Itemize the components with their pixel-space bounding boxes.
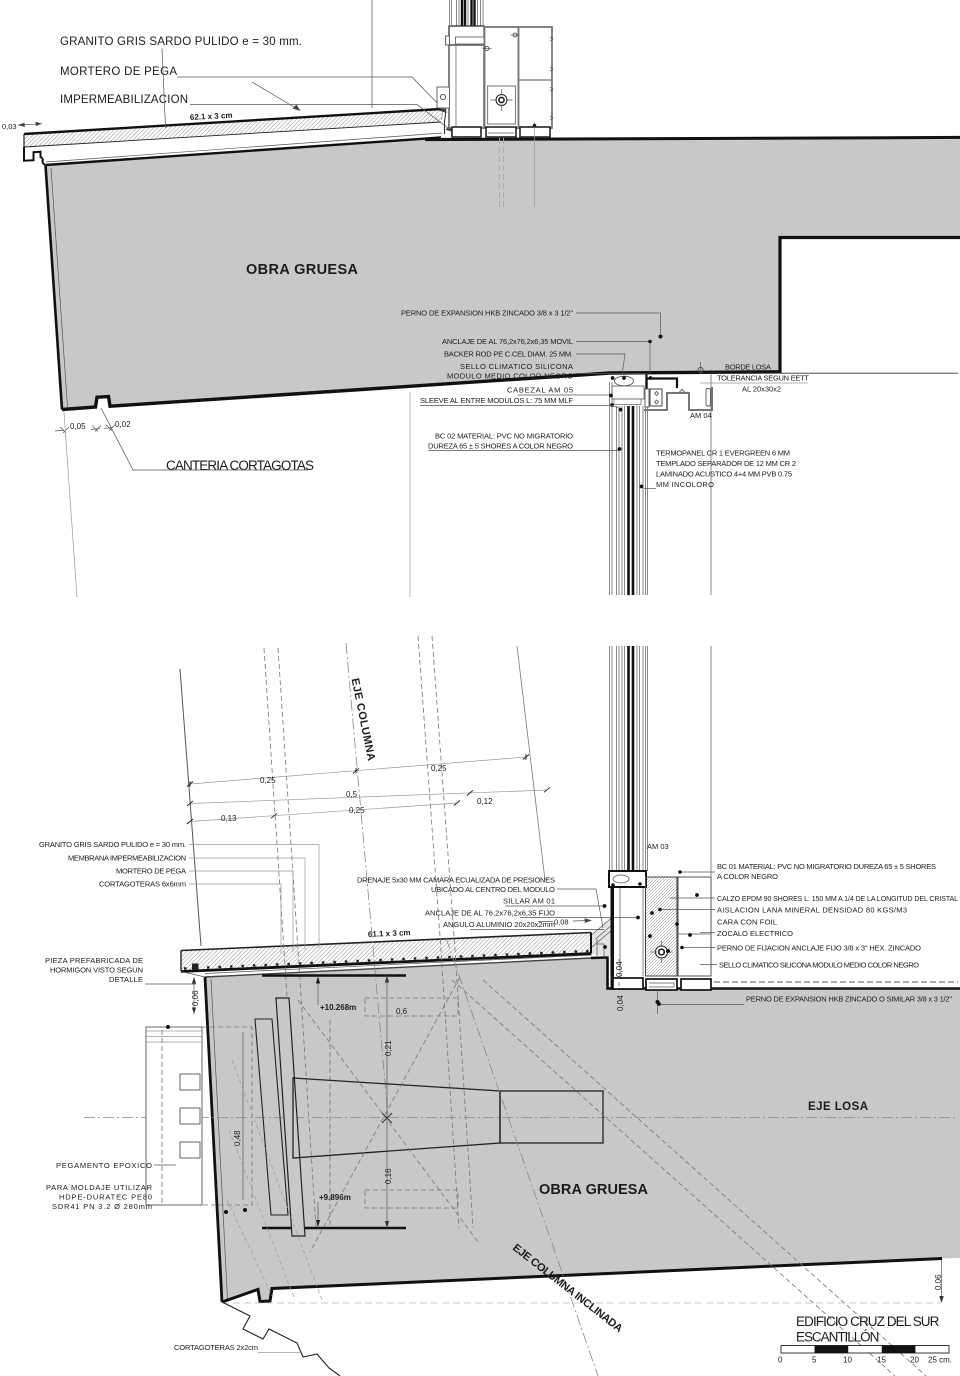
- svg-text:TOLERANCIA SEGUN EETT: TOLERANCIA SEGUN EETT: [717, 374, 809, 383]
- svg-text:ZOCALO ELECTRICO: ZOCALO ELECTRICO: [717, 929, 793, 938]
- svg-text:BORDE LOSA: BORDE LOSA: [725, 363, 771, 372]
- svg-text:LAMINADO ACUSTICO 4+4 MM PVB 0: LAMINADO ACUSTICO 4+4 MM PVB 0.75: [656, 470, 792, 479]
- svg-text:AM 04: AM 04: [690, 411, 712, 420]
- svg-text:ESCANTILLÓN: ESCANTILLÓN: [796, 1330, 880, 1345]
- svg-text:0,6: 0,6: [396, 1007, 408, 1016]
- svg-text:0,25: 0,25: [349, 806, 365, 815]
- svg-text:PIEZA PREFABRICADA DE: PIEZA PREFABRICADA DE: [45, 956, 143, 965]
- svg-text:25 cm.: 25 cm.: [928, 1356, 952, 1365]
- svg-text:A COLOR NEGRO: A COLOR NEGRO: [717, 872, 778, 881]
- svg-text:SELLO CLIMATICO SILICONA MODUL: SELLO CLIMATICO SILICONA MODULO MEDIO CO…: [719, 961, 919, 970]
- svg-text:+10.268m: +10.268m: [320, 1003, 356, 1012]
- svg-text:MORTERO DE PEGA: MORTERO DE PEGA: [116, 867, 186, 876]
- svg-text:0,05: 0,05: [70, 422, 86, 431]
- svg-text:CANTERIA CORTAGOTAS: CANTERIA CORTAGOTAS: [166, 458, 314, 473]
- svg-text:CORTAGOTERAS 6x6mm: CORTAGOTERAS 6x6mm: [99, 880, 186, 889]
- svg-text:ANCLAJE DE AL 76,2x76,2x6,35 M: ANCLAJE DE AL 76,2x76,2x6,35 MOVIL: [442, 337, 573, 346]
- svg-text:SILLAR AM 01: SILLAR AM 01: [503, 897, 555, 906]
- svg-text:0,08: 0,08: [554, 918, 569, 927]
- svg-text:HORMIGON VISTO SEGUN: HORMIGON VISTO SEGUN: [50, 966, 143, 975]
- svg-text:DETALLE: DETALLE: [109, 975, 143, 984]
- svg-text:DUREZA 65 ± 5 SHORES A COLOR N: DUREZA 65 ± 5 SHORES A COLOR NEGRO: [428, 442, 573, 451]
- svg-text:AISLACION LANA MINERAL DENSI: AISLACION LANA MINERAL DENSIDAD 80 KGS/M…: [717, 906, 907, 915]
- svg-text:CARA CON FOIL: CARA CON FOIL: [717, 918, 777, 927]
- svg-text:TERMOPANEL CR 1 EVERGREEN 6 MM: TERMOPANEL CR 1 EVERGREEN 6 MM: [656, 449, 790, 458]
- svg-text:CABEZAL AM 05: CABEZAL AM 05: [507, 386, 573, 395]
- svg-text:0,12: 0,12: [477, 797, 493, 806]
- svg-text:UBICADO AL CENTRO DEL MODULO: UBICADO AL CENTRO DEL MODULO: [431, 885, 555, 894]
- svg-text:0,25: 0,25: [260, 776, 276, 785]
- svg-text:SDR41 PN 3.2 Ø 280mm: SDR41 PN 3.2 Ø 280mm: [52, 1202, 152, 1211]
- svg-text:0,04: 0,04: [615, 961, 624, 977]
- svg-text:0,5: 0,5: [346, 790, 358, 799]
- svg-text:SLEEVE AL ENTRE MODULOS L: 75: SLEEVE AL ENTRE MODULOS L: 75 MM MLF: [420, 396, 573, 405]
- svg-text:0,21: 0,21: [384, 1040, 393, 1056]
- svg-text:PEGAMENTO EPOXICO: PEGAMENTO EPOXICO: [56, 1161, 152, 1170]
- svg-text:CALZO EPDM 90 SHORES L: 150 MM: CALZO EPDM 90 SHORES L: 150 MM A 1/4 DE …: [717, 896, 958, 903]
- svg-text:AM 03: AM 03: [647, 842, 669, 851]
- svg-text:OBRA GRUESA: OBRA GRUESA: [246, 262, 359, 278]
- svg-text:TEMPLADO SEPARADOR DE 12 MM C: TEMPLADO SEPARADOR DE 12 MM CR 2: [656, 459, 796, 468]
- svg-text:5: 5: [812, 1356, 817, 1365]
- svg-text:+9.896m: +9.896m: [319, 1193, 351, 1202]
- svg-text:EDIFICIO CRUZ DEL SUR: EDIFICIO CRUZ DEL SUR: [796, 1314, 940, 1329]
- svg-text:PERNO DE EXPANSION HKB ZINCADO: PERNO DE EXPANSION HKB ZINCADO 3/8 x 3 1…: [401, 309, 573, 318]
- svg-text:CORTAGOTERAS 2x2cm: CORTAGOTERAS 2x2cm: [174, 1343, 258, 1352]
- svg-text:DRENAJE 5x30 MM CAMARA ECUALIZ: DRENAJE 5x30 MM CAMARA ECUALIZADA DE PRE…: [357, 876, 555, 885]
- svg-text:GRANITO GRIS SARDO PULIDO e =: GRANITO GRIS SARDO PULIDO e = 30 mm.: [60, 36, 302, 48]
- svg-text:0,02: 0,02: [115, 420, 131, 429]
- svg-text:10: 10: [843, 1356, 852, 1365]
- svg-text:SELLO CLIMATICO SILICONA: SELLO CLIMATICO SILICONA: [460, 362, 573, 371]
- svg-text:MODULO MEDIO COLOR NEGRO: MODULO MEDIO COLOR NEGRO: [447, 372, 573, 381]
- svg-text:BACKER ROD PE C.CEL DIAM. 25 M: BACKER ROD PE C.CEL DIAM. 25 MM.: [444, 350, 573, 359]
- svg-text:0,25: 0,25: [431, 764, 447, 773]
- svg-text:0,13: 0,13: [221, 814, 237, 823]
- svg-text:15: 15: [877, 1356, 886, 1365]
- svg-text:PERNO DE FIJACION ANCLAJE FIJO: PERNO DE FIJACION ANCLAJE FIJO 3/8 x 3" …: [717, 944, 921, 953]
- svg-text:EJE LOSA: EJE LOSA: [808, 1101, 868, 1113]
- svg-text:IMPERMEABILIZACION: IMPERMEABILIZACION: [60, 94, 188, 106]
- svg-text:0,04: 0,04: [616, 995, 625, 1011]
- svg-text:MEMBRANA IMPERMEABILIZACION: MEMBRANA IMPERMEABILIZACION: [68, 854, 186, 863]
- svg-text:HDPE-DURATEC PE80: HDPE-DURATEC PE80: [59, 1193, 152, 1202]
- svg-text:0,16: 0,16: [384, 1168, 393, 1184]
- svg-text:0,06: 0,06: [191, 990, 200, 1006]
- svg-text:0: 0: [778, 1356, 783, 1365]
- svg-text:ANCLAJE DE AL 76,2x76,2x6,35 F: ANCLAJE DE AL 76,2x76,2x6,35 FIJO: [425, 909, 555, 918]
- svg-text:20: 20: [910, 1356, 919, 1365]
- svg-text:MM INCOLORO: MM INCOLORO: [656, 480, 714, 489]
- svg-text:PARA MOLDAJE UTILIZAR: PARA MOLDAJE UTILIZAR: [46, 1183, 153, 1192]
- svg-text:OBRA GRUESA: OBRA GRUESA: [539, 1182, 649, 1198]
- svg-text:MORTERO DE PEGA: MORTERO DE PEGA: [60, 66, 177, 78]
- svg-text:PERNO DE EXPANSION HKB ZINCADO: PERNO DE EXPANSION HKB ZINCADO O SIMILAR…: [746, 995, 952, 1004]
- svg-text:BC 01 MATERIAL: PVC NO MIGRATO: BC 01 MATERIAL: PVC NO MIGRATORIO DUREZA…: [717, 862, 936, 871]
- svg-text:0,03: 0,03: [2, 122, 17, 131]
- svg-text:BC 02 MATERIAL: PVC NO MIGRATO: BC 02 MATERIAL: PVC NO MIGRATORIO: [435, 432, 573, 441]
- svg-text:GRANITO GRIS SARDO PULIDO e =: GRANITO GRIS SARDO PULIDO e = 30 mm.: [39, 840, 186, 849]
- svg-text:AL 20x30x2: AL 20x30x2: [742, 385, 781, 394]
